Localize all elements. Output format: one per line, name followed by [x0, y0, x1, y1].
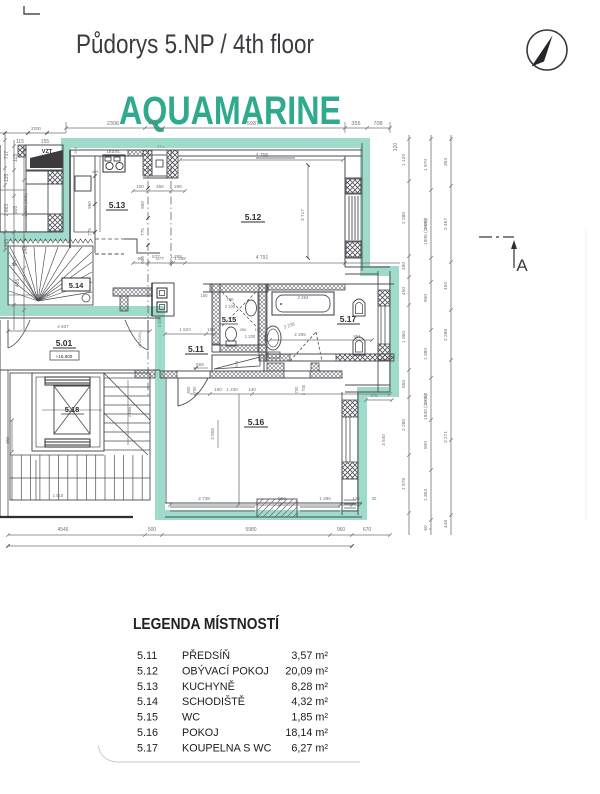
svg-text:1 265: 1 265: [73, 146, 78, 157]
svg-text:5.18: 5.18: [65, 405, 80, 414]
svg-text:700: 700: [294, 386, 299, 394]
svg-text:1 230: 1 230: [226, 387, 238, 392]
svg-text:5.17: 5.17: [137, 742, 158, 754]
svg-text:5.14: 5.14: [137, 696, 158, 708]
svg-text:1 624: 1 624: [179, 327, 191, 332]
svg-text:77 L: 77 L: [157, 144, 166, 149]
svg-text:2306: 2306: [107, 121, 119, 127]
svg-text:1930 (1905): 1930 (1905): [423, 394, 429, 420]
svg-text:1 363: 1 363: [423, 489, 429, 501]
svg-text:LEGENDA MÍSTNOSTÍ: LEGENDA MÍSTNOSTÍ: [133, 616, 280, 633]
svg-text:2 738: 2 738: [198, 496, 210, 501]
svg-text:18,14 m²: 18,14 m²: [285, 727, 328, 739]
svg-text:3 540: 3 540: [381, 434, 386, 446]
svg-text:150: 150: [201, 293, 209, 298]
svg-text:5.15: 5.15: [137, 712, 158, 724]
svg-text:2 288: 2 288: [443, 329, 449, 341]
svg-text:4546: 4546: [57, 527, 68, 533]
svg-text:(E1/200): (E1/200): [137, 332, 142, 348]
svg-text:+16,600: +16,600: [56, 354, 73, 359]
svg-text:900: 900: [140, 201, 145, 209]
svg-text:1 516: 1 516: [53, 493, 64, 498]
svg-text:717: 717: [4, 151, 10, 160]
svg-text:155: 155: [41, 139, 50, 145]
svg-text:900: 900: [423, 294, 429, 302]
svg-text:4,32 m²: 4,32 m²: [291, 696, 328, 708]
svg-text:708: 708: [373, 121, 382, 127]
svg-text:650: 650: [401, 380, 407, 388]
svg-text:775: 775: [87, 228, 92, 236]
svg-text:135: 135: [4, 174, 10, 183]
svg-text:2 467: 2 467: [443, 218, 449, 230]
svg-text:1 970: 1 970: [423, 159, 429, 171]
svg-text:3 558: 3 558: [210, 428, 215, 440]
svg-text:560: 560: [5, 436, 10, 444]
svg-text:670: 670: [363, 527, 372, 533]
svg-text:1 285: 1 285: [319, 496, 331, 501]
svg-text:49: 49: [11, 262, 17, 267]
svg-text:960: 960: [337, 527, 346, 533]
svg-text:20,09 m²: 20,09 m²: [285, 665, 328, 677]
svg-text:5.11: 5.11: [137, 650, 157, 662]
svg-text:3 271: 3 271: [443, 431, 449, 443]
svg-text:OBÝVACÍ POKOJ: OBÝVACÍ POKOJ: [182, 664, 269, 677]
svg-text:KOUPELNA S WC: KOUPELNA S WC: [182, 742, 272, 754]
svg-text:1,85 m²: 1,85 m²: [291, 712, 328, 724]
svg-text:1 200: 1 200: [245, 334, 256, 339]
svg-text:6,27 m²: 6,27 m²: [291, 742, 328, 754]
svg-text:490: 490: [401, 262, 407, 270]
svg-text:485: 485: [15, 279, 21, 288]
svg-text:1 120: 1 120: [401, 154, 407, 166]
svg-text:600: 600: [140, 256, 145, 264]
svg-text:5.13: 5.13: [109, 200, 126, 210]
svg-text:2 280: 2 280: [401, 212, 407, 224]
svg-text:5.13: 5.13: [137, 681, 158, 693]
svg-text:5.01: 5.01: [56, 338, 73, 348]
svg-text:353: 353: [443, 158, 449, 166]
svg-text:450: 450: [401, 287, 407, 295]
svg-text:PŘEDSÍŇ: PŘEDSÍŇ: [182, 649, 230, 662]
svg-text:120: 120: [393, 143, 399, 152]
svg-text:4 637: 4 637: [57, 324, 69, 329]
svg-text:700: 700: [227, 297, 235, 302]
svg-text:4 791: 4 791: [256, 255, 269, 261]
svg-text:115: 115: [16, 139, 24, 145]
svg-text:100: 100: [136, 184, 144, 189]
svg-text:905: 905: [13, 206, 19, 215]
svg-text:978: 978: [371, 393, 379, 398]
svg-text:SCHODIŠTĚ: SCHODIŠTĚ: [182, 695, 245, 708]
svg-text:700: 700: [192, 386, 197, 394]
svg-text:140: 140: [248, 387, 256, 392]
svg-text:459: 459: [92, 169, 99, 174]
svg-text:5.12: 5.12: [137, 665, 158, 677]
svg-text:A: A: [516, 256, 528, 275]
svg-text:5.16: 5.16: [137, 727, 158, 739]
svg-text:500: 500: [148, 527, 157, 533]
svg-text:5987: 5987: [247, 121, 259, 127]
svg-text:298: 298: [174, 184, 182, 189]
svg-text:LED.EL.: LED.EL.: [107, 150, 121, 154]
svg-text:1 978: 1 978: [401, 478, 407, 490]
svg-text:375: 375: [234, 360, 239, 367]
svg-text:Půdorys 5.NP / 4th floor: Půdorys 5.NP / 4th floor: [76, 29, 314, 59]
svg-text:5.15: 5.15: [222, 315, 237, 324]
svg-text:5980: 5980: [245, 527, 256, 533]
svg-text:20: 20: [372, 496, 377, 501]
svg-text:960: 960: [87, 201, 92, 209]
svg-text:5.14: 5.14: [69, 281, 84, 290]
svg-text:POKOJ: POKOJ: [182, 727, 219, 739]
svg-text:2 100: 2 100: [225, 304, 236, 309]
svg-text:1 060: 1 060: [401, 331, 407, 343]
svg-text:775: 775: [140, 228, 145, 236]
svg-text:2 264: 2 264: [298, 295, 310, 300]
svg-text:3,57 m²: 3,57 m²: [291, 650, 328, 662]
svg-text:854: 854: [354, 334, 362, 339]
svg-text:577: 577: [152, 254, 160, 259]
svg-text:355: 355: [351, 121, 360, 127]
svg-text:150: 150: [255, 327, 262, 332]
svg-text:3 717: 3 717: [300, 209, 306, 221]
svg-text:1,288: 1,288: [170, 254, 182, 259]
svg-text:KUCHYNĚ: KUCHYNĚ: [182, 680, 235, 693]
svg-text:456: 456: [156, 184, 164, 189]
svg-text:5.16: 5.16: [248, 417, 265, 427]
svg-text:8,28 m²: 8,28 m²: [291, 681, 328, 693]
svg-text:2 280: 2 280: [401, 419, 407, 431]
svg-text:800: 800: [186, 386, 191, 394]
svg-text:458: 458: [148, 121, 157, 127]
svg-text:900: 900: [423, 441, 429, 449]
svg-text:5.11: 5.11: [188, 344, 204, 354]
svg-text:450: 450: [443, 282, 449, 290]
svg-text:WC: WC: [182, 712, 200, 724]
svg-text:448: 448: [443, 520, 449, 528]
svg-text:1 380: 1 380: [423, 348, 429, 360]
svg-text:2200: 2200: [31, 126, 41, 131]
svg-text:1906 (1905): 1906 (1905): [423, 219, 429, 245]
svg-text:VZT: VZT: [42, 149, 53, 155]
svg-text:280: 280: [240, 327, 247, 332]
svg-text:2 295: 2 295: [294, 332, 306, 337]
svg-text:160: 160: [214, 387, 222, 392]
svg-text:2 700: 2 700: [301, 384, 306, 395]
svg-text:5.12: 5.12: [245, 212, 262, 222]
